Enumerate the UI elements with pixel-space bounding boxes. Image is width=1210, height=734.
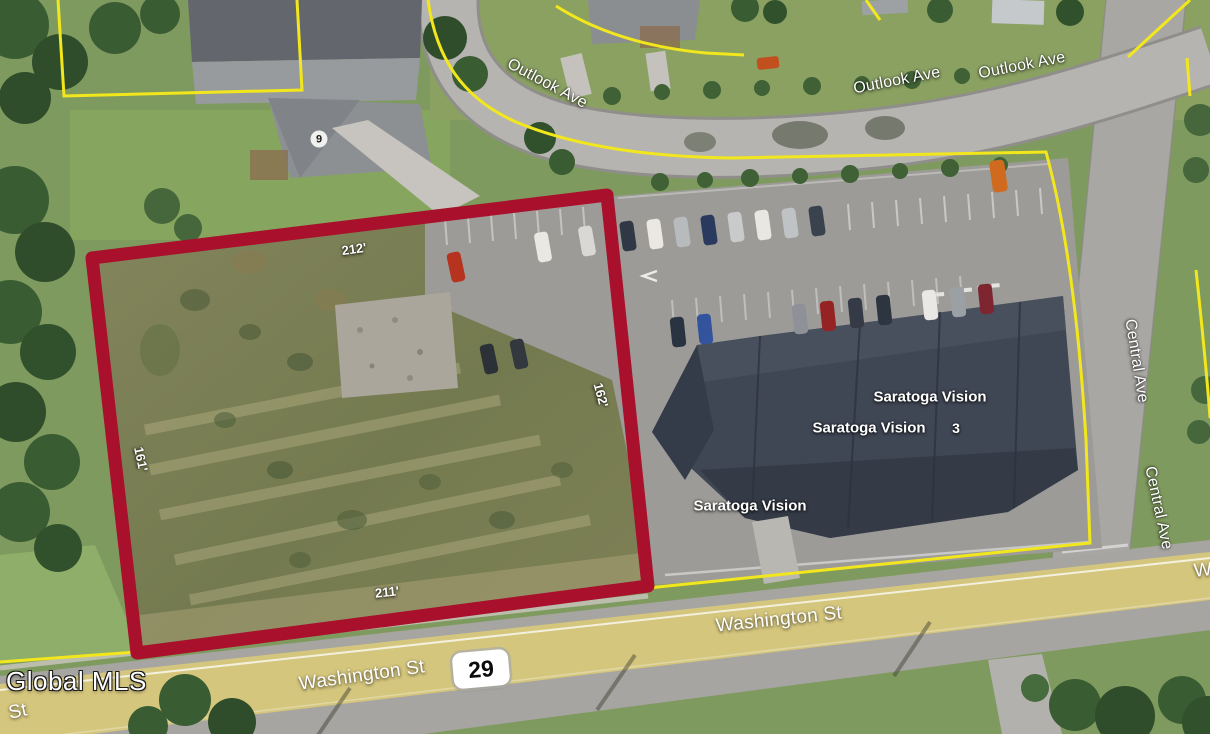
house-number-badge: 9 [311,131,328,148]
map-canvas [0,0,1210,734]
route-29-shield: 29 [452,649,511,690]
aerial-map[interactable]: Outlook Ave Outlook Ave Outlook Ave Cent… [0,0,1210,734]
global-mls-watermark: Global MLS [6,666,147,697]
route-29-number: 29 [467,654,495,683]
